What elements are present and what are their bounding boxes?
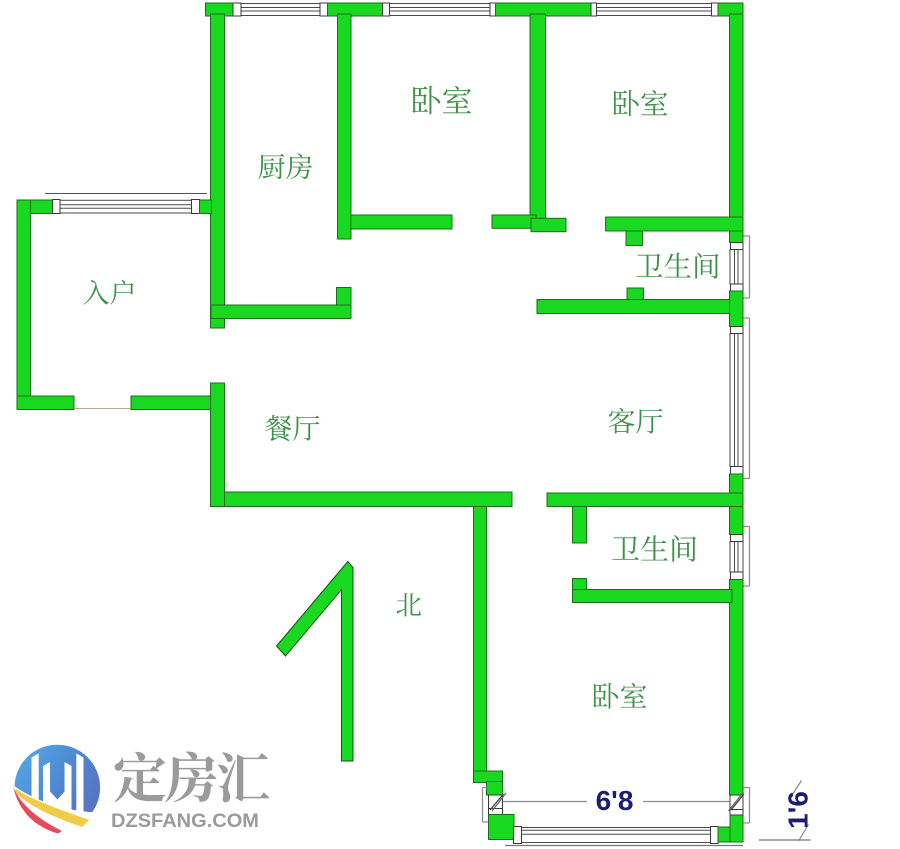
svg-text:1'6: 1'6 [783, 791, 814, 829]
svg-text:6'8: 6'8 [596, 785, 634, 816]
svg-text:DZSFANG.COM: DZSFANG.COM [111, 811, 259, 832]
